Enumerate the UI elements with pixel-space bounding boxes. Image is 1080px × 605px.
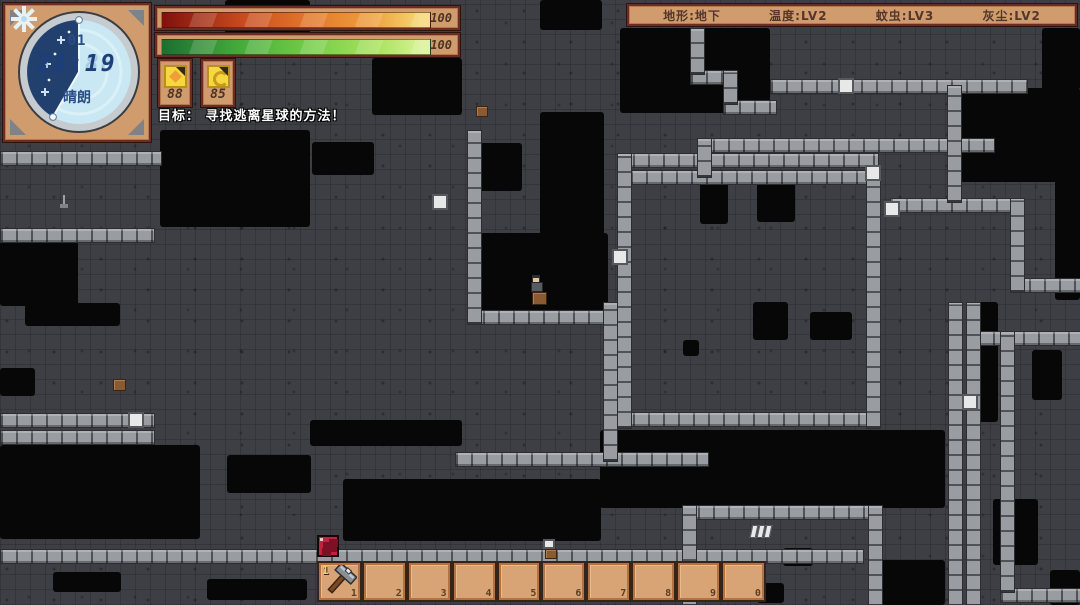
health-bar-fill bbox=[161, 12, 431, 28]
cave-void bbox=[753, 302, 788, 340]
plant-base bbox=[60, 204, 68, 208]
stone-wall bbox=[977, 331, 1080, 346]
water-icon bbox=[207, 65, 230, 88]
stone-wall bbox=[603, 302, 618, 462]
cave-void bbox=[312, 142, 374, 175]
hotbar-slot-6[interactable]: 6 bbox=[541, 561, 586, 602]
cave-void bbox=[310, 420, 462, 446]
stone-wall bbox=[947, 85, 962, 203]
hotbar-slot-9[interactable]: 9 bbox=[676, 561, 721, 602]
crystal-glint bbox=[320, 538, 323, 541]
stone-wall bbox=[0, 151, 162, 166]
hotbar-slot-0[interactable]: 0 bbox=[721, 561, 766, 602]
energy-value: 100 bbox=[422, 38, 452, 52]
hotbar-slot-4[interactable]: 4 bbox=[452, 561, 497, 602]
light-block bbox=[865, 165, 881, 181]
cave-void bbox=[540, 0, 602, 30]
small-crate[interactable] bbox=[113, 379, 126, 391]
cave-void bbox=[0, 445, 200, 539]
player-body bbox=[531, 282, 543, 292]
stone-wall bbox=[682, 505, 874, 520]
stone-wall bbox=[868, 505, 883, 605]
cave-void bbox=[0, 368, 35, 396]
stone-wall bbox=[617, 153, 879, 168]
stone-wall bbox=[0, 430, 155, 445]
clock-widget: 88:88 01 21:19 晴朗 bbox=[3, 3, 151, 142]
slot-number: 3 bbox=[441, 588, 447, 599]
cave-void bbox=[540, 112, 604, 304]
snowflake-icon bbox=[11, 6, 37, 32]
cave-void bbox=[1055, 88, 1080, 300]
status-item: 蚊虫:LV3 bbox=[876, 7, 934, 24]
health-bar: 100 bbox=[155, 6, 460, 30]
slot-number: 2 bbox=[396, 588, 402, 599]
stone-wall bbox=[455, 452, 709, 467]
hotbar-slot-2[interactable]: 2 bbox=[362, 561, 407, 602]
slot-number: 9 bbox=[710, 588, 716, 599]
stone-wall bbox=[866, 170, 881, 429]
slot-number: 0 bbox=[755, 588, 761, 599]
cave-void bbox=[53, 572, 121, 592]
stone-wall bbox=[617, 153, 632, 429]
cave-void bbox=[227, 455, 311, 493]
cave-void bbox=[757, 182, 795, 222]
day-counter: 01 bbox=[5, 33, 149, 49]
hotbar-slot-8[interactable]: 8 bbox=[631, 561, 676, 602]
cave-void bbox=[683, 340, 699, 356]
health-value: 100 bbox=[422, 11, 452, 25]
light-block bbox=[432, 194, 448, 210]
stone-wall bbox=[770, 79, 1028, 94]
thirst-meter: 85 bbox=[201, 59, 235, 107]
small-crate[interactable] bbox=[545, 549, 557, 559]
status-item: 地形:地下 bbox=[663, 7, 721, 24]
game-viewport: 88:88 01 21:19 晴朗 100 100 88 85 目标： 寻找逃离… bbox=[0, 0, 1080, 605]
slot-number: 6 bbox=[575, 588, 581, 599]
stone-wall bbox=[630, 170, 868, 185]
light-block bbox=[838, 78, 854, 94]
light-block bbox=[612, 249, 628, 265]
clock-time: 21:19 bbox=[5, 51, 149, 77]
hotbar-slot-5[interactable]: 5 bbox=[497, 561, 542, 602]
cave-void bbox=[1042, 28, 1080, 90]
stone-wall bbox=[690, 28, 705, 75]
light-block bbox=[128, 412, 144, 428]
hunger-meter: 88 bbox=[158, 59, 192, 107]
slot-number: 1 bbox=[351, 588, 357, 599]
cave-void bbox=[207, 579, 307, 600]
stone-wall bbox=[1000, 331, 1015, 593]
cave-void bbox=[0, 241, 78, 306]
cave-void bbox=[810, 312, 852, 340]
energy-bar-fill bbox=[161, 39, 431, 55]
small-crate[interactable] bbox=[476, 106, 488, 117]
stone-wall bbox=[0, 228, 155, 243]
light-block bbox=[962, 394, 978, 410]
player-character[interactable] bbox=[530, 275, 542, 291]
cave-void bbox=[700, 182, 728, 224]
cave-plant[interactable] bbox=[59, 195, 69, 209]
environment-status-bar: 地形:地下温度:LV2蚊虫:LV3灰尘:LV2 bbox=[627, 4, 1077, 26]
status-item: 灰尘:LV2 bbox=[982, 7, 1040, 24]
cave-void bbox=[1032, 350, 1062, 400]
stone-wall bbox=[966, 302, 981, 605]
cave-void bbox=[477, 143, 522, 191]
cave-void bbox=[343, 479, 601, 541]
crystal-pattern bbox=[323, 542, 332, 550]
stone-wall bbox=[617, 412, 881, 427]
slot-number: 5 bbox=[530, 588, 536, 599]
cave-void bbox=[25, 303, 120, 326]
red-crystal-block[interactable] bbox=[317, 535, 339, 557]
stone-wall bbox=[697, 138, 712, 178]
status-item: 温度:LV2 bbox=[769, 7, 827, 24]
hotbar: 11234567890 bbox=[317, 561, 766, 602]
slot-number: 7 bbox=[620, 588, 626, 599]
hotbar-slot-3[interactable]: 3 bbox=[407, 561, 452, 602]
cave-void bbox=[978, 302, 998, 422]
cave-void bbox=[372, 58, 462, 115]
energy-bar: 100 bbox=[155, 33, 460, 57]
cave-void bbox=[160, 130, 310, 227]
stone-wall bbox=[467, 310, 615, 325]
thirst-value: 85 bbox=[203, 87, 233, 102]
objective-text: 目标： 寻找逃离星球的方法！ bbox=[158, 105, 346, 124]
slot-number: 4 bbox=[486, 588, 492, 599]
stone-wall bbox=[1010, 198, 1025, 293]
ore-bars[interactable] bbox=[751, 523, 772, 542]
stone-wall bbox=[948, 302, 963, 605]
hotbar-slot-1[interactable]: 11 bbox=[317, 561, 362, 602]
light-block bbox=[884, 201, 900, 217]
slot-number: 8 bbox=[665, 588, 671, 599]
white-chest[interactable] bbox=[543, 539, 555, 549]
food-icon bbox=[164, 65, 187, 88]
hunger-value: 88 bbox=[160, 87, 190, 102]
stone-wall bbox=[467, 130, 482, 325]
hotbar-slot-7[interactable]: 7 bbox=[586, 561, 631, 602]
player-backpack[interactable] bbox=[532, 292, 547, 305]
cave-void bbox=[600, 430, 945, 508]
stone-wall bbox=[723, 70, 738, 105]
weather-label: 晴朗 bbox=[5, 87, 149, 107]
